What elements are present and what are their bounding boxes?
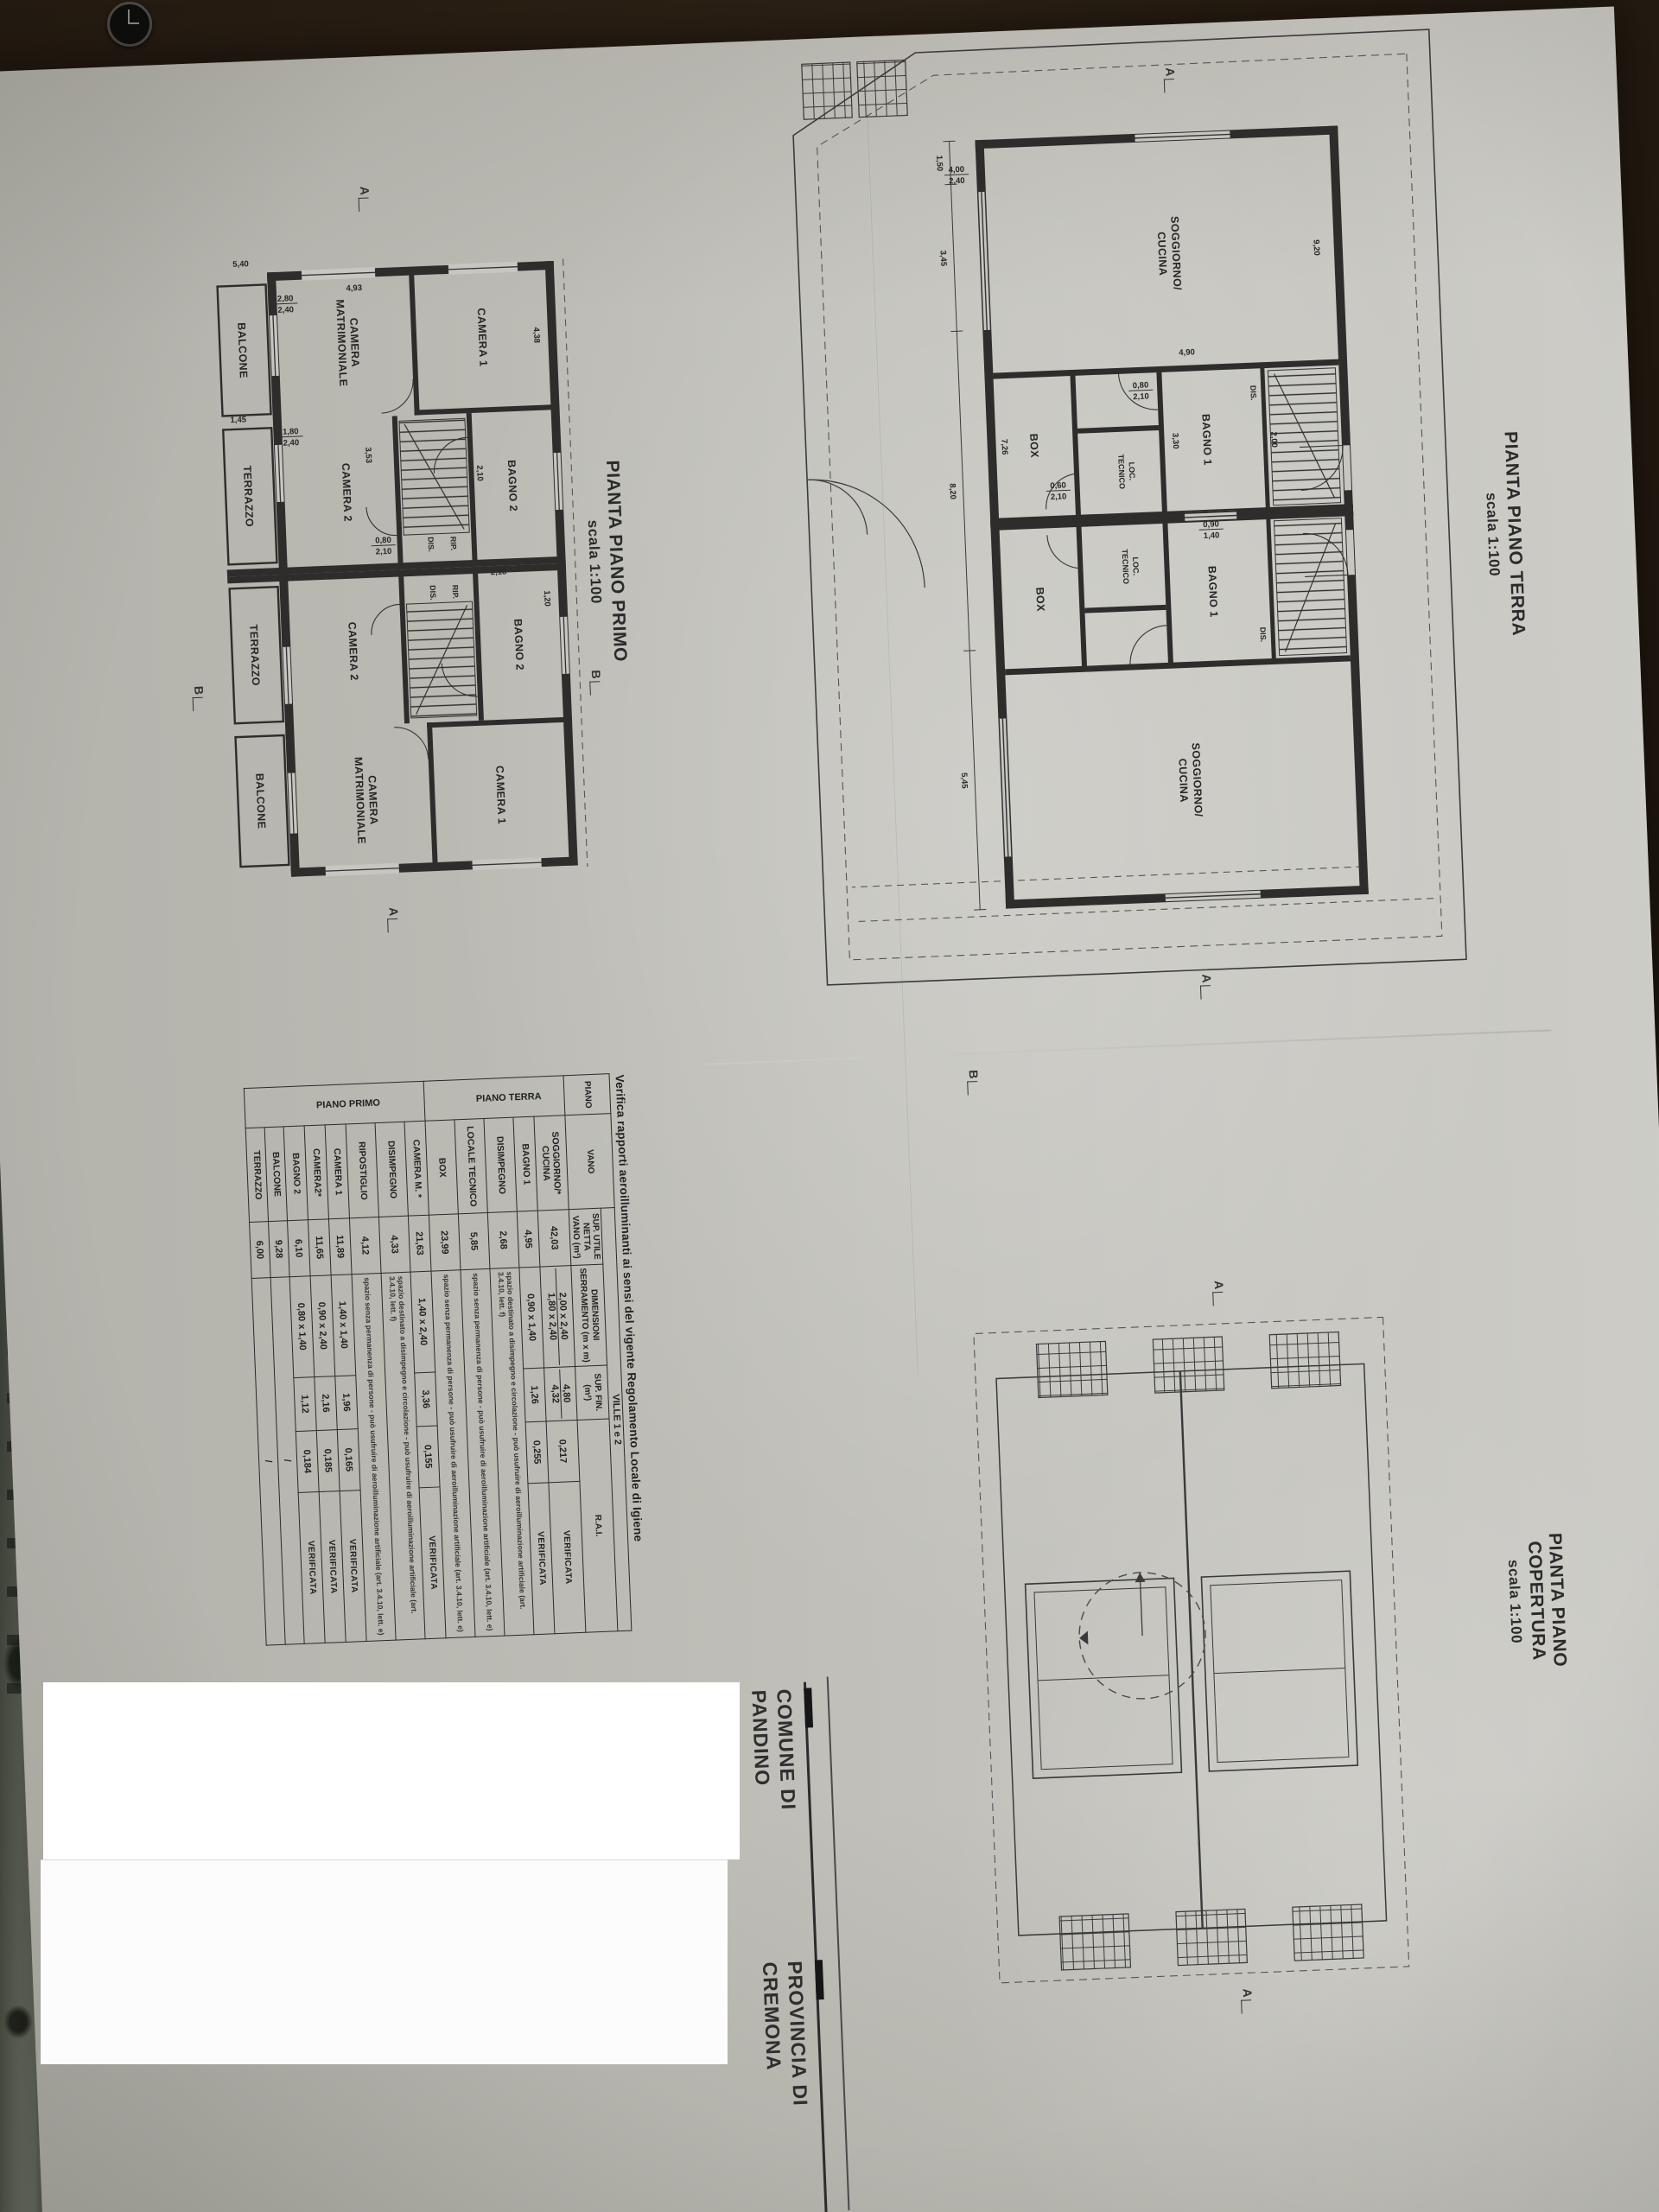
svg-text:DIS.: DIS. — [1258, 626, 1268, 642]
svg-text:CAMERA: CAMERA — [365, 775, 379, 825]
plan-primo-drawing: CAMERA 1 BAGNO 2 RIP. DIS. CAMERA MATRIM… — [206, 234, 594, 905]
section-mark-a: A — [1212, 1281, 1227, 1306]
svg-text:1,45: 1,45 — [230, 415, 247, 425]
svg-text:DIS.: DIS. — [1249, 385, 1258, 401]
section-mark-a: A — [387, 907, 402, 933]
svg-text:2,40: 2,40 — [949, 176, 965, 187]
svg-text:RIP.: RIP. — [451, 584, 461, 599]
svg-text:2,18: 2,18 — [491, 567, 507, 577]
group-label-primo: PIANO PRIMO — [316, 1099, 353, 1111]
svg-text:CUCINA: CUCINA — [1176, 758, 1190, 803]
svg-text:0,80: 0,80 — [375, 536, 391, 546]
svg-text:3,45: 3,45 — [938, 250, 949, 267]
section-mark-b: B — [589, 670, 604, 696]
col-header-fin: SUP. FIN. (m²) — [575, 1365, 609, 1421]
svg-text:CAMERA 2: CAMERA 2 — [340, 463, 354, 523]
svg-text:2,10: 2,10 — [1133, 391, 1149, 402]
svg-text:LOC.: LOC. — [1128, 461, 1137, 480]
svg-text:BAGNO 2: BAGNO 2 — [512, 619, 525, 671]
svg-text:SOGGIORNO/: SOGGIORNO/ — [1168, 216, 1183, 291]
title-block-tick — [804, 1688, 813, 1727]
svg-text:2,40: 2,40 — [277, 305, 294, 315]
col-header-dim: DIMENSIONI SERRAMENTO (m x m) — [571, 1264, 607, 1366]
group-label-terra: PIANO TERRA — [476, 1092, 512, 1104]
title-block-border — [804, 1682, 828, 2212]
svg-text:BOX: BOX — [1033, 587, 1046, 612]
svg-text:CAMERA 2: CAMERA 2 — [346, 621, 360, 681]
section-mark-b: B — [192, 686, 207, 712]
provincia-label: PROVINCIA DI CREMONA — [757, 1961, 812, 2108]
svg-text:0,90: 0,90 — [1203, 519, 1219, 530]
verifica-table: PIANO VANO VILLE 1 e 2 SUP. UTILE NETTA … — [244, 1073, 632, 1646]
col-header-piano: PIANO — [563, 1074, 611, 1116]
verifica-table-block: Verifica rapporti aeroilluminanti ai sen… — [244, 1072, 649, 1645]
svg-text:BAGNO 1: BAGNO 1 — [1199, 414, 1213, 466]
svg-text:2,40: 2,40 — [283, 438, 299, 448]
svg-text:DIS.: DIS. — [429, 585, 438, 601]
svg-text:1,20: 1,20 — [542, 590, 552, 607]
svg-text:3,30: 3,30 — [1170, 433, 1180, 449]
col-header-sup: SUP. UTILE NETTA VANO (m²) — [569, 1208, 603, 1265]
redaction-box — [41, 1859, 728, 2064]
photo-scene: PIANTA PIANO TERRA scala 1:100 PIANTA PI… — [0, 0, 1659, 2212]
svg-text:1,80: 1,80 — [283, 427, 299, 437]
svg-text:TERRAZZO: TERRAZZO — [241, 466, 256, 528]
comune-label: COMUNE DI PANDINO — [747, 1688, 801, 1812]
svg-text:2,80: 2,80 — [277, 294, 294, 304]
clock-object — [107, 2, 152, 47]
title-block-tick — [815, 1960, 824, 1999]
col-header-vano: VANO — [565, 1114, 614, 1210]
svg-text:5,45: 5,45 — [959, 772, 969, 790]
folder-smudge — [3, 2005, 33, 2039]
svg-text:8,20: 8,20 — [947, 483, 957, 499]
svg-text:BALCONE: BALCONE — [253, 773, 268, 829]
svg-text:2,10: 2,10 — [474, 465, 485, 481]
svg-text:1,40: 1,40 — [1204, 531, 1220, 541]
svg-text:2,10: 2,10 — [376, 547, 392, 557]
svg-text:4,93: 4,93 — [346, 283, 362, 294]
plan-copertura-drawing — [967, 1313, 1416, 1990]
svg-text:7,26: 7,26 — [999, 439, 1009, 455]
svg-text:2,10: 2,10 — [1051, 492, 1067, 502]
svg-text:4,38: 4,38 — [531, 327, 542, 343]
svg-text:RIP.: RIP. — [448, 537, 458, 551]
svg-text:BAGNO 1: BAGNO 1 — [1205, 566, 1219, 618]
svg-text:0,80: 0,80 — [1133, 380, 1149, 391]
svg-text:1,50: 1,50 — [934, 156, 944, 172]
svg-text:BALCONE: BALCONE — [235, 322, 250, 378]
svg-text:CAMERA 1: CAMERA 1 — [475, 308, 490, 367]
svg-text:BAGNO 2: BAGNO 2 — [505, 460, 519, 512]
plan-terra-drawing: SOGGIORNO/ CUCINA DIS. BAGNO 1 LOC. TECN… — [760, 27, 1471, 1003]
svg-text:CAMERA: CAMERA — [347, 317, 361, 367]
svg-text:TECNICO: TECNICO — [1121, 549, 1131, 584]
svg-text:5,40: 5,40 — [232, 259, 249, 270]
plan-copertura-title-block: PIANTA PIANO COPERTURA scala 1:100 — [1501, 1478, 1572, 1723]
svg-text:LOC.: LOC. — [1131, 556, 1141, 575]
svg-text:MATRIMONIALE: MATRIMONIALE — [334, 299, 349, 387]
svg-text:TECNICO: TECNICO — [1116, 454, 1127, 489]
svg-text:DIS.: DIS. — [426, 537, 435, 552]
plan-terra-title-block: PIANTA PIANO TERRA scala 1:100 — [1479, 412, 1529, 656]
plan-primo-title-block: PIANTA PIANO PRIMO scala 1:100 — [581, 440, 631, 683]
section-mark-b: B — [967, 1070, 982, 1096]
plan-copertura-title: PIANTA PIANO COPERTURA — [1521, 1478, 1572, 1722]
section-mark-a: A — [1241, 1988, 1255, 2014]
redaction-box — [43, 1682, 740, 1859]
svg-text:CUCINA: CUCINA — [1155, 232, 1169, 276]
svg-text:CAMERA 1: CAMERA 1 — [493, 766, 508, 825]
svg-text:4,00: 4,00 — [948, 165, 964, 175]
svg-text:0,60: 0,60 — [1050, 480, 1066, 491]
title-block-rule — [827, 1677, 849, 2211]
paper-crease — [705, 1029, 1551, 1065]
svg-text:MATRIMONIALE: MATRIMONIALE — [353, 757, 368, 845]
svg-text:3,53: 3,53 — [363, 447, 373, 463]
svg-text:4,90: 4,90 — [1179, 347, 1195, 358]
section-mark-a: A — [358, 186, 372, 212]
svg-text:TERRAZZO: TERRAZZO — [247, 624, 262, 686]
svg-text:SOGGIORNO/: SOGGIORNO/ — [1190, 742, 1205, 817]
svg-text:BOX: BOX — [1027, 433, 1040, 458]
svg-text:9,20: 9,20 — [1311, 239, 1321, 256]
svg-text:2,00: 2,00 — [1268, 431, 1279, 448]
